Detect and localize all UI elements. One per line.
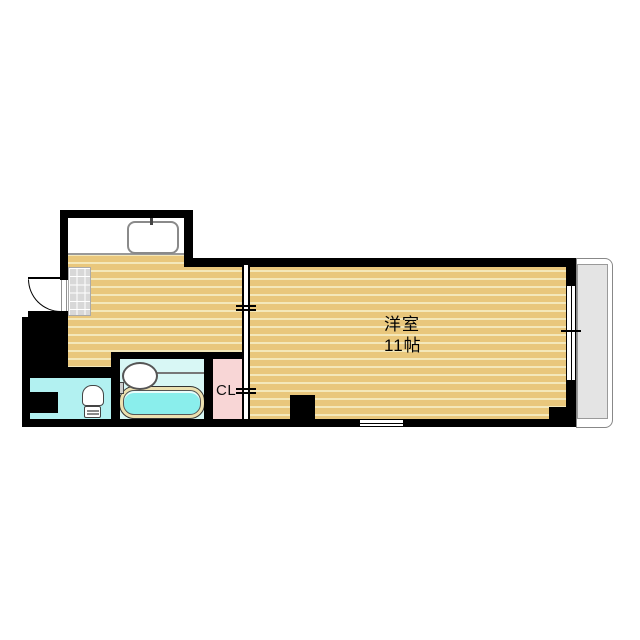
wash-basin-icon xyxy=(122,362,158,390)
floor-plan: 洋室11帖 CL xyxy=(0,0,640,640)
wall-kitchen-top xyxy=(60,210,193,218)
partition-tick xyxy=(236,388,256,390)
window-midline xyxy=(571,286,573,380)
door-jamb xyxy=(61,280,62,311)
wall-bottom xyxy=(22,419,576,427)
pillar-bottom-center xyxy=(290,395,315,419)
sliding-partition xyxy=(242,265,250,419)
bath-counter-line xyxy=(155,372,204,374)
wall-kitchen-left xyxy=(60,210,68,280)
balcony xyxy=(577,264,608,419)
kitchen-floor-right xyxy=(184,267,242,352)
toilet-tank-line xyxy=(87,410,99,412)
wall-closet-left xyxy=(204,359,213,419)
door-jamb xyxy=(66,280,67,311)
room-label: 洋室11帖 xyxy=(384,314,422,356)
room-size: 11帖 xyxy=(384,336,422,355)
partition-tick xyxy=(236,392,256,394)
toilet-tank-line xyxy=(87,413,99,415)
kitchen-sink-icon xyxy=(127,221,179,254)
bathtub-water xyxy=(123,390,201,415)
wall-step xyxy=(60,367,113,378)
closet-label: CL xyxy=(216,382,236,399)
wall-toilet-block xyxy=(30,392,58,413)
wall-right-upper xyxy=(566,258,576,286)
pillar-bottom-right xyxy=(549,407,576,427)
wall-toilet-bath-divider xyxy=(111,352,120,427)
partition-tick xyxy=(236,305,256,307)
wall-bath-top xyxy=(111,352,250,359)
window-tick xyxy=(561,330,581,332)
kitchen-floor-mid xyxy=(113,254,184,352)
window-bottom xyxy=(359,419,404,427)
room-name: 洋室 xyxy=(384,315,420,334)
window-right xyxy=(566,285,576,381)
genkan-tile xyxy=(68,267,91,316)
window-midline xyxy=(360,423,403,425)
bathtub-icon xyxy=(119,386,205,419)
toilet-tank-icon xyxy=(84,406,101,418)
entry-door-arc xyxy=(28,279,61,312)
toilet-icon xyxy=(82,385,104,406)
partition-tick xyxy=(236,309,256,311)
